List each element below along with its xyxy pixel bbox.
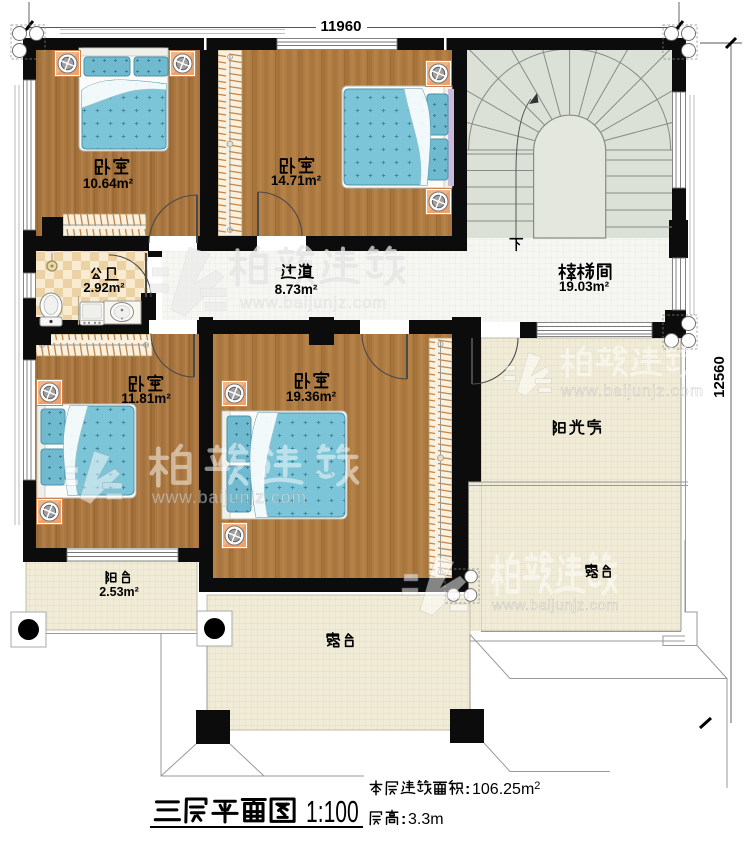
svg-text:106.25m2: 106.25m2	[472, 780, 540, 798]
svg-text:12560: 12560	[711, 356, 728, 398]
svg-text:8.73m²: 8.73m²	[275, 282, 318, 297]
svg-text:2.92m²: 2.92m²	[83, 280, 125, 295]
svg-text:10.64m²: 10.64m²	[83, 176, 134, 191]
svg-text:2.53m²: 2.53m²	[99, 585, 139, 599]
svg-text:www.baijunjz.com: www.baijunjz.com	[560, 383, 704, 400]
svg-text:www.baijunjz.com: www.baijunjz.com	[151, 487, 307, 507]
svg-text:19.03m²: 19.03m²	[559, 279, 610, 294]
svg-text:11.81m²: 11.81m²	[121, 391, 171, 406]
svg-text:www.baijunjz.com: www.baijunjz.com	[491, 597, 619, 614]
svg-text:19.36m²: 19.36m²	[286, 389, 337, 404]
svg-text:1:100: 1:100	[306, 794, 359, 829]
svg-text:11960: 11960	[321, 18, 362, 35]
svg-text:14.71m²: 14.71m²	[271, 173, 322, 188]
svg-text::: :	[401, 811, 406, 828]
svg-text:3.3m: 3.3m	[408, 811, 444, 828]
svg-text::: :	[465, 781, 470, 798]
